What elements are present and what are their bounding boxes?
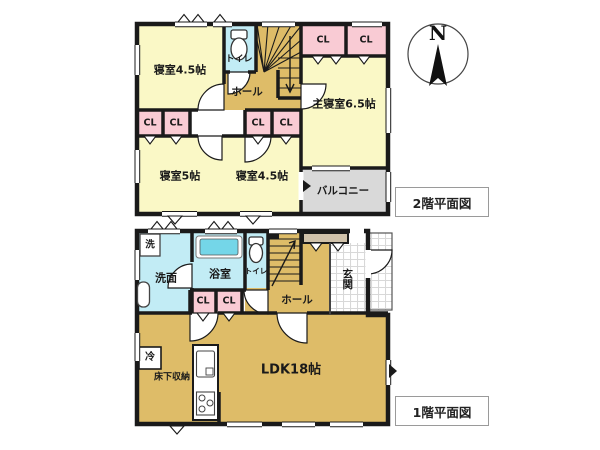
closet-label: CL xyxy=(251,118,264,128)
floorplan-canvas: N xyxy=(0,0,600,450)
bedroom-b-label: 寝室5帖 xyxy=(160,171,201,182)
closet-label: CL xyxy=(359,35,372,45)
closet-label: CL xyxy=(143,118,156,128)
hall-1f-label: ホール xyxy=(281,295,313,306)
compass-north-label: N xyxy=(429,21,447,45)
laundry-label: 洗 xyxy=(145,240,155,250)
entrance-label: 玄関 xyxy=(342,269,353,290)
bedroom-c-label: 寝室4.5帖 xyxy=(236,171,289,182)
toilet-icon-1f xyxy=(249,237,263,263)
floor1-room-fills xyxy=(137,231,392,424)
floor1-plan xyxy=(135,222,398,435)
bathtub-icon xyxy=(196,236,242,258)
closet-label: CL xyxy=(279,118,292,128)
ldk-window-mark xyxy=(389,364,397,378)
fridge-label: 冷 xyxy=(145,353,155,363)
floor2-title: 2階平面図 xyxy=(395,187,489,217)
hall-2f-label: ホール xyxy=(231,87,263,98)
vestibule-2f xyxy=(190,110,245,136)
closet-label: CL xyxy=(196,296,209,306)
toilet-1f-label: トイレ xyxy=(245,267,268,275)
ldk-label: LDK18帖 xyxy=(261,364,321,377)
balcony-label: バルコニー xyxy=(317,186,369,197)
kitchen-counter xyxy=(193,345,218,420)
closet-label: CL xyxy=(222,296,235,306)
floorplan-page: N 寝室4.5帖 トイレ ホール 主寝室6.5帖 CL CL CL CL CL … xyxy=(0,0,600,450)
washroom-label: 洗面 xyxy=(155,273,177,284)
closet-label: CL xyxy=(169,118,182,128)
room-master-bedroom xyxy=(301,56,388,168)
stove-icon xyxy=(197,392,215,415)
underfloor-storage-label: 床下収納 xyxy=(152,372,192,383)
bathroom-label: 浴室 xyxy=(209,269,231,280)
compass: N xyxy=(408,21,468,86)
toilet-2f-label: トイレ xyxy=(225,56,252,65)
master-bedroom-label: 主寝室6.5帖 xyxy=(312,99,376,110)
closet-label: CL xyxy=(316,35,329,45)
shoe-cabinet xyxy=(303,233,348,243)
bedroom-a-label: 寝室4.5帖 xyxy=(154,65,207,76)
vanity-sink-icon xyxy=(138,282,150,307)
floor1-title: 1階平面図 xyxy=(395,396,489,426)
